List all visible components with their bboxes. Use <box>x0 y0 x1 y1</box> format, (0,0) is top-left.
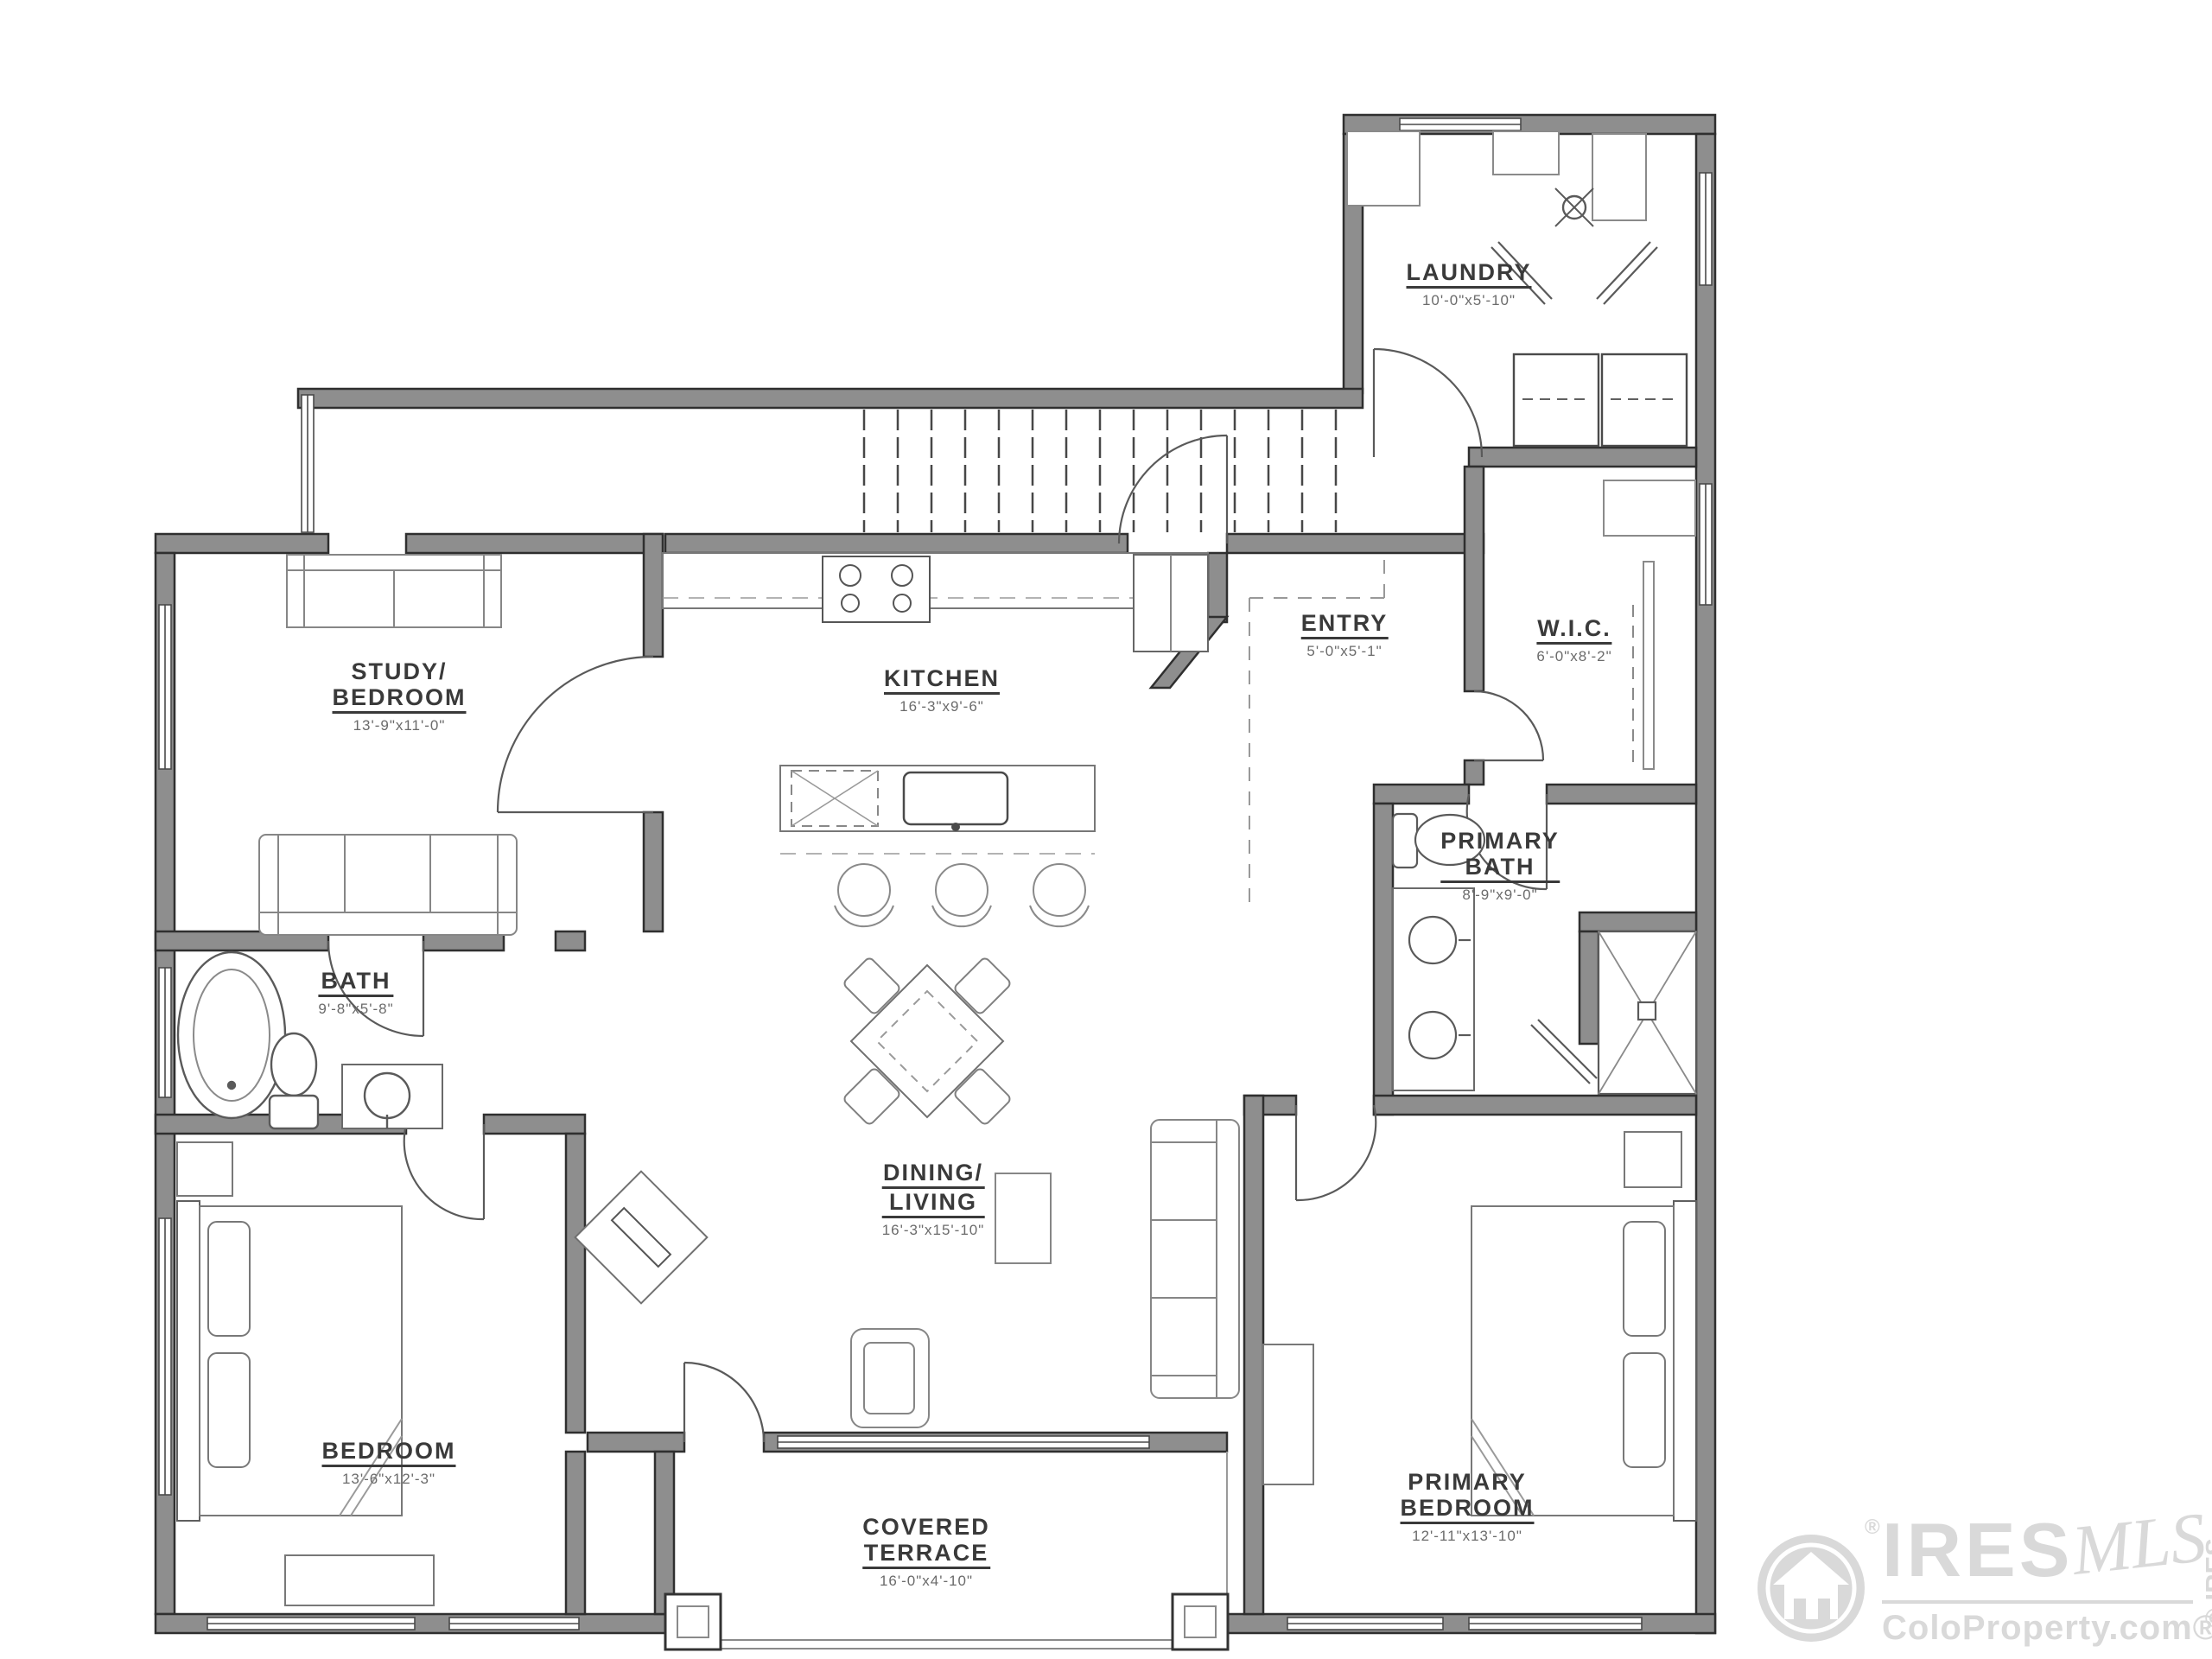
study-furniture <box>259 555 517 935</box>
room-label-primary-bath: PRIMARY BATH 8'-9"x9'-0" <box>1440 828 1560 904</box>
watermark-site: ColoProperty.com® <box>1882 1609 2212 1648</box>
room-label-bath: BATH 9'-8"x5'-8" <box>318 968 393 1018</box>
ires-mls-watermark: ® IRES MLS ColoProperty.com® © IRES <box>1751 1517 2212 1659</box>
kitchen-island <box>780 766 1095 854</box>
registered-mark: ® <box>1865 1516 1880 1540</box>
watermark-mls-script: MLS <box>2069 1502 2209 1586</box>
floor-plan: LAUNDRY 10'-0"x5'-10" KITCHEN 16'-3"x9'-… <box>0 0 2212 1659</box>
ires-house-logo-icon <box>1751 1517 1872 1656</box>
room-label-study-bedroom: STUDY/ BEDROOM 13'-9"x11'-0" <box>333 658 467 734</box>
wic-closet <box>1604 480 1695 769</box>
room-label-covered-terrace: COVERED TERRACE 16'-0"x4'-10" <box>862 1514 990 1590</box>
room-label-primary-bedroom: PRIMARY BEDROOM 12'-11"x13'-10" <box>1401 1469 1535 1545</box>
room-label-dining-living: DINING/ LIVING 16'-3"x15'-10" <box>882 1160 985 1239</box>
floor-plan-drawing <box>0 0 2212 1659</box>
room-label-laundry: LAUNDRY 10'-0"x5'-10" <box>1407 259 1532 309</box>
watermark-divider <box>1882 1600 2193 1604</box>
room-label-entry: ENTRY 5'-0"x5'-1" <box>1301 610 1389 660</box>
primary-bedroom-furniture <box>1263 1132 1696 1521</box>
kitchen-counter <box>663 553 1208 652</box>
entry-dashed-lines <box>1249 553 1384 909</box>
dining-set <box>842 957 1012 1126</box>
bath-fixtures <box>178 952 442 1128</box>
room-label-kitchen: KITCHEN 16'-3"x9'-6" <box>884 665 1000 715</box>
room-label-wic: W.I.C. 6'-0"x8'-2" <box>1536 615 1611 665</box>
watermark-copyright: © IRES <box>2200 1538 2212 1628</box>
bar-stools <box>835 864 1089 926</box>
watermark-brand: IRES <box>1882 1512 2073 1588</box>
stairs <box>864 410 1336 532</box>
room-label-bedroom: BEDROOM 13'-6"x12'-3" <box>322 1438 456 1488</box>
bedroom-furniture <box>177 1142 434 1605</box>
